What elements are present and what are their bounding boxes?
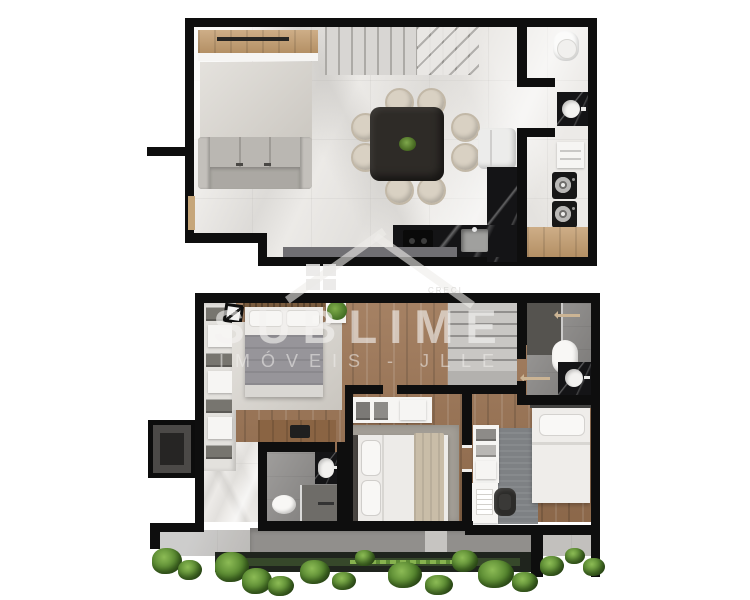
watermark-window-grid-icon <box>306 264 336 290</box>
sofa-seats <box>210 137 300 167</box>
master-bed <box>245 307 323 397</box>
sofa-cushion-accent <box>264 163 271 166</box>
lower-wall-bottom-right <box>465 525 600 535</box>
bedroom2-bed <box>358 435 448 521</box>
bedroom23-wall-b <box>462 472 472 531</box>
bath-sink-upper <box>562 100 580 118</box>
bathroom2-faucet <box>584 376 590 379</box>
wall-art <box>223 303 244 324</box>
balcony-ledge <box>283 247 457 257</box>
stairs-landing <box>448 371 517 385</box>
bedroom3-shelf <box>473 425 499 483</box>
dining-chair <box>451 143 480 172</box>
shelf-clothes <box>356 402 370 418</box>
plant-on-stand <box>327 301 347 320</box>
lower-wall-top <box>195 293 600 303</box>
bathroom1-shower-wand <box>318 502 334 505</box>
bedroom3-blanket-fold <box>532 442 590 445</box>
office-chair-seat <box>499 494 511 510</box>
stairs-winder <box>417 27 479 75</box>
wardrobe-drawer <box>208 417 232 439</box>
bathroom1-wall-right <box>337 442 345 530</box>
door-threshold <box>462 469 472 472</box>
bedroom2-duvet-fold <box>382 435 384 521</box>
wardrobe-clothes-stack <box>206 445 232 457</box>
dining-chair <box>451 113 480 142</box>
shelf-items <box>476 429 496 439</box>
master-desk <box>258 420 336 442</box>
door-threshold <box>462 445 472 448</box>
tv-panel <box>198 30 318 53</box>
corridor-wall-stub <box>517 78 555 87</box>
balcony-door-leaf <box>188 196 195 230</box>
fridge-door-seam <box>490 130 492 167</box>
lower-wall-bottom-mid <box>258 521 473 531</box>
window-pane <box>306 264 320 276</box>
door-swing-arrow <box>556 314 580 317</box>
bathroom1-wall-left <box>258 442 267 522</box>
terrace-step-wall-v <box>150 523 160 549</box>
bathroom1-sink-counter <box>315 452 337 484</box>
sofa-cushion-accent <box>236 163 243 166</box>
bath-faucet-upper <box>581 107 586 111</box>
bathroom2-sink <box>565 369 583 387</box>
laundry-cabinet <box>557 142 584 168</box>
floor-plan-image: CRECI SUBLIME IMÓVEIS - JLLE <box>0 0 750 600</box>
window-pane <box>323 264 337 276</box>
washer <box>552 172 577 199</box>
wardrobe-clothes-stack <box>206 353 232 365</box>
fridge <box>478 128 516 169</box>
cabinet-shelf-line <box>560 158 581 160</box>
window-pane <box>306 279 320 291</box>
table-centerpiece-plant <box>399 137 416 151</box>
stairs-lower <box>448 303 517 385</box>
corridor-wall-upper <box>517 27 527 85</box>
stairs-upper <box>325 27 479 75</box>
wall-art-print <box>226 306 241 321</box>
cooktop-burner <box>421 238 427 244</box>
tv-ledge <box>198 53 318 61</box>
bathroom2-wall-bottom <box>517 395 600 405</box>
sofa <box>198 137 312 189</box>
upper-notch-wall-v <box>258 233 267 266</box>
cooktop-burner <box>409 238 415 244</box>
pillow <box>539 414 585 436</box>
sofa-armrest-left <box>198 137 210 189</box>
pillow <box>361 440 381 476</box>
dryer <box>552 201 577 228</box>
sofa-backrest <box>210 167 300 189</box>
toilet-upper <box>553 31 579 61</box>
upper-exterior-wall-stub <box>147 147 185 156</box>
corridor-wall-lower <box>517 128 527 262</box>
bathroom2-sink-counter <box>558 362 591 395</box>
dryer-door <box>555 206 571 222</box>
arrowhead <box>550 311 558 319</box>
lower-floor-plan <box>150 291 610 596</box>
toilet-bowl <box>557 39 577 59</box>
upper-notch-cutout <box>185 243 258 266</box>
service-shaft <box>148 420 196 478</box>
shelf-items <box>476 445 496 455</box>
dining-table <box>370 107 444 181</box>
door-swing-arrow <box>522 377 550 380</box>
window-pane <box>323 279 337 291</box>
kitchen-faucet <box>472 227 477 232</box>
bathroom1-wall-top <box>258 442 335 452</box>
service-shaft-opening <box>160 433 184 465</box>
shelf-box <box>400 400 426 420</box>
corridor-wall-stub <box>517 128 555 137</box>
bedroom2-wall-top-b <box>397 385 517 394</box>
laundry-wood-bench <box>527 227 588 257</box>
washer-knob <box>572 178 575 181</box>
cabinet-shelf-line <box>560 150 581 152</box>
sofa-armrest-right <box>300 137 312 189</box>
pillow <box>286 310 320 327</box>
wardrobe-drawer <box>208 325 232 347</box>
office-chair <box>494 488 516 516</box>
master-foot-sheet <box>245 385 323 397</box>
wardrobe-drawer <box>208 371 232 393</box>
lower-wall-left <box>195 293 204 532</box>
bedroom2-wall-left <box>345 385 353 531</box>
washer-door <box>555 177 571 193</box>
bedroom2-shelf <box>352 397 432 423</box>
kitchen-sink <box>461 229 488 252</box>
bedroom2-throw <box>414 433 444 523</box>
stairs-wall-right <box>517 293 527 345</box>
laptop <box>290 425 310 438</box>
desk-papers <box>476 489 493 515</box>
shelf-clothes <box>374 402 388 418</box>
master-blanket <box>245 335 323 385</box>
wardrobe-clothes-stack <box>206 399 232 411</box>
upper-floor-plan <box>185 18 597 266</box>
bathroom1-toilet <box>272 495 296 514</box>
shelf-box <box>476 461 496 479</box>
tv <box>217 37 289 41</box>
bathroom2-wall-left-a <box>517 345 526 359</box>
bath-sink-counter-upper <box>557 92 588 126</box>
pillow <box>361 480 381 516</box>
dryer-knob <box>572 207 575 210</box>
bedroom3-bed <box>532 408 590 503</box>
pillow <box>249 310 283 327</box>
upper-notch-wall-h <box>185 233 267 243</box>
bedroom23-wall-a <box>462 387 472 445</box>
